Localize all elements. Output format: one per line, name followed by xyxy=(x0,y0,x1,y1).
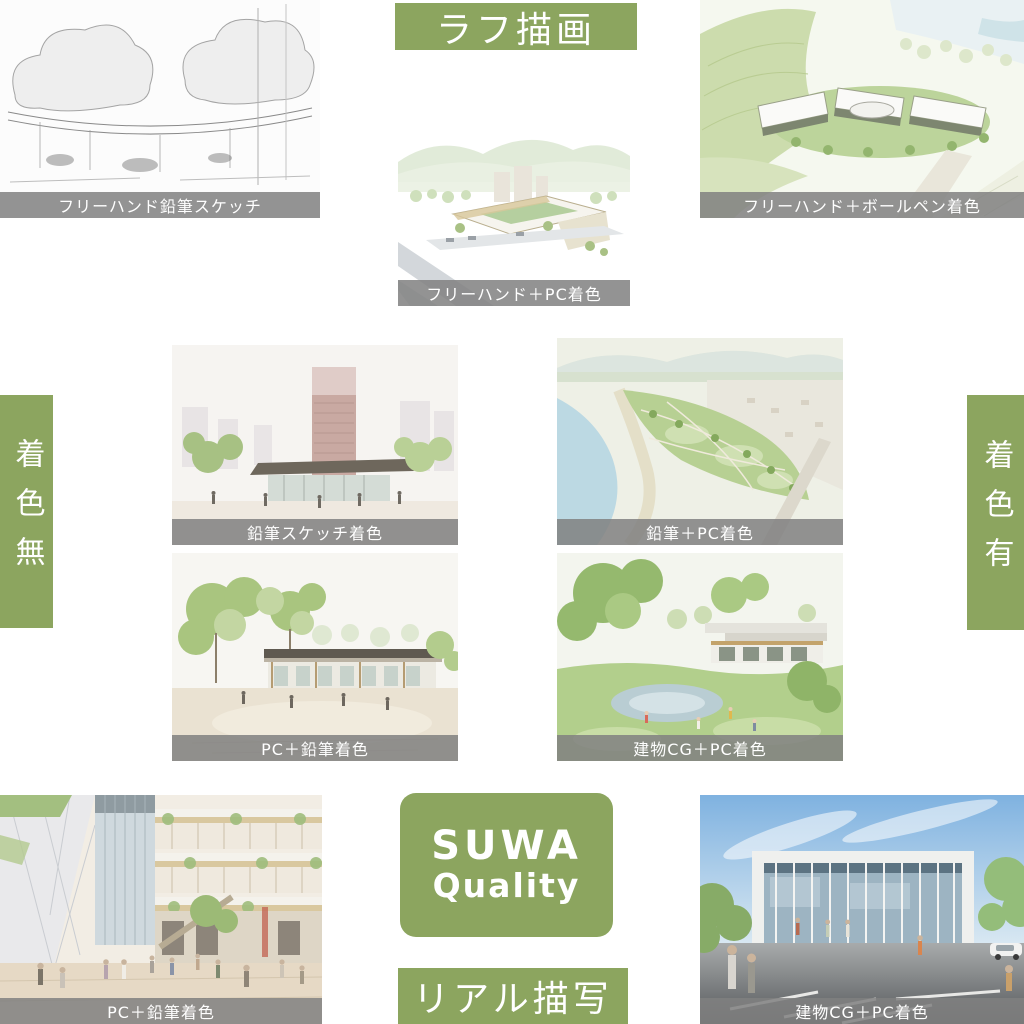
suwa-quality-badge: SUWA Quality xyxy=(400,793,613,937)
caption-building-cg-pc-color-facade: 建物CG＋PC着色 xyxy=(700,998,1024,1024)
axis-label-no-color: 着色無 xyxy=(0,395,53,628)
style-matrix-diagram: フリーハンド鉛筆スケッチ xyxy=(0,0,1024,1024)
low-building-plaza-illustration xyxy=(172,553,458,761)
panel-pencil-sketch-color: 鉛筆スケッチ着色 xyxy=(172,345,458,545)
axis-label-with-color: 着色有 xyxy=(967,395,1024,630)
caption-freehand-ballpoint-color: フリーハンド＋ボールペン着色 xyxy=(700,192,1024,218)
caption-pencil-pc-color: 鉛筆＋PC着色 xyxy=(557,519,843,545)
park-pond-building-illustration xyxy=(557,553,843,761)
pencil-sketch-illustration xyxy=(0,0,320,218)
caption-freehand-pencil-sketch: フリーハンド鉛筆スケッチ xyxy=(0,192,320,218)
caption-building-cg-pc-color-park: 建物CG＋PC着色 xyxy=(557,735,843,761)
glass-building-cg-illustration xyxy=(700,795,1024,1024)
panel-pc-pencil-color-mall: PC＋鉛筆着色 xyxy=(0,795,322,1024)
hillside-campus-illustration xyxy=(700,0,1024,218)
watercolor-aerial-illustration xyxy=(398,110,630,306)
panel-pencil-pc-color: 鉛筆＋PC着色 xyxy=(557,338,843,545)
panel-building-cg-pc-color-park: 建物CG＋PC着色 xyxy=(557,553,843,761)
panel-pc-pencil-color-plaza: PC＋鉛筆着色 xyxy=(172,553,458,761)
axis-label-realistic-depiction: リアル描写 xyxy=(398,968,628,1024)
panel-freehand-pc-color: フリーハンド＋PC着色 xyxy=(398,110,630,306)
shopping-plaza-illustration xyxy=(0,795,322,1024)
panel-freehand-ballpoint-color: フリーハンド＋ボールペン着色 xyxy=(700,0,1024,218)
park-pavilion-illustration xyxy=(172,345,458,545)
badge-line2: Quality xyxy=(433,867,581,905)
caption-pencil-sketch-color: 鉛筆スケッチ着色 xyxy=(172,519,458,545)
panel-freehand-pencil-sketch: フリーハンド鉛筆スケッチ xyxy=(0,0,320,218)
panel-building-cg-pc-color-facade: 建物CG＋PC着色 xyxy=(700,795,1024,1024)
caption-pc-pencil-color-plaza: PC＋鉛筆着色 xyxy=(172,735,458,761)
badge-line1: SUWA xyxy=(431,825,582,867)
riverside-park-illustration xyxy=(557,338,843,545)
caption-freehand-pc-color: フリーハンド＋PC着色 xyxy=(398,280,630,306)
axis-label-rough-drawing: ラフ描画 xyxy=(395,3,637,50)
caption-pc-pencil-color-mall: PC＋鉛筆着色 xyxy=(0,998,322,1024)
